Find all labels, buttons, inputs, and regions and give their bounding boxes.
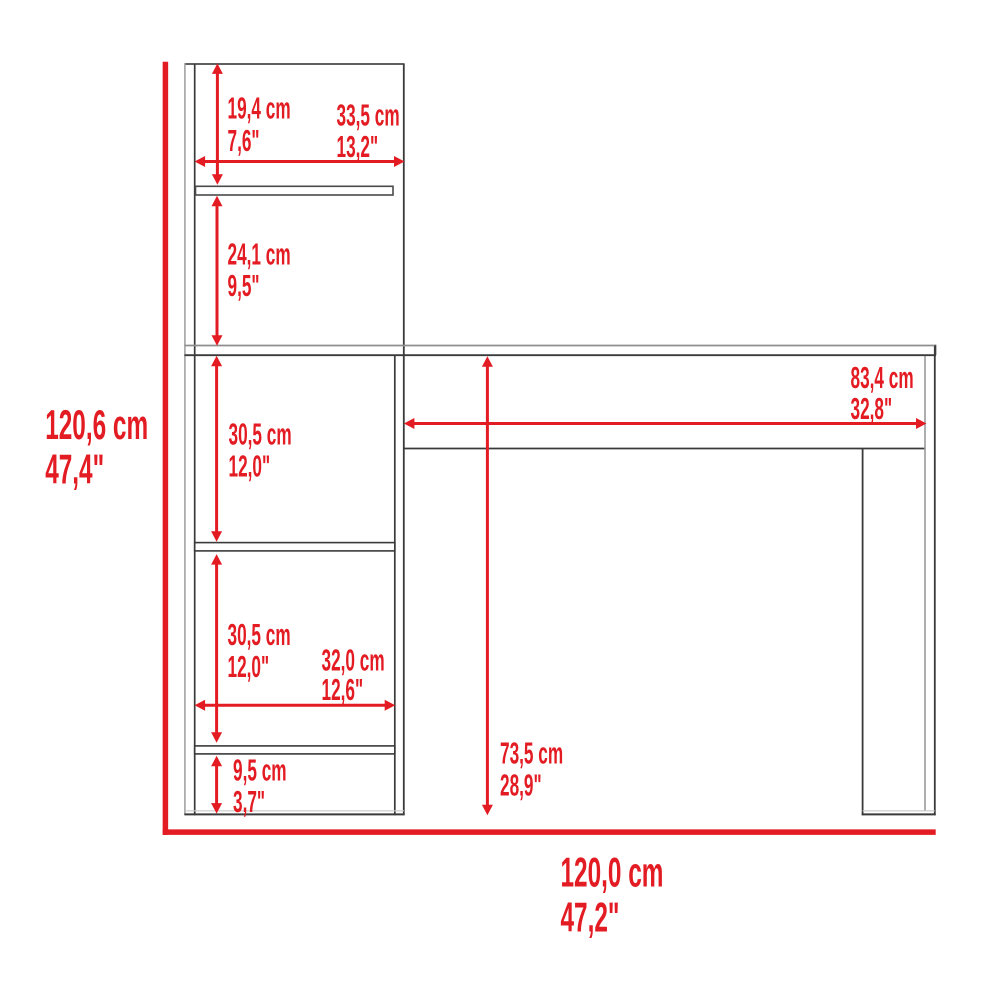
svg-text:83,4 cm: 83,4 cm: [851, 361, 914, 396]
svg-text:30,5 cm: 30,5 cm: [228, 618, 291, 653]
svg-text:9,5": 9,5": [228, 269, 260, 304]
svg-text:24,1 cm: 24,1 cm: [228, 237, 291, 272]
svg-text:12,6": 12,6": [322, 673, 364, 708]
svg-text:19,4 cm: 19,4 cm: [228, 91, 291, 126]
svg-text:47,2": 47,2": [561, 895, 620, 941]
svg-text:13,2": 13,2": [337, 130, 379, 165]
svg-text:12,0": 12,0": [229, 449, 271, 484]
svg-text:120,0 cm: 120,0 cm: [561, 850, 664, 896]
svg-text:7,6": 7,6": [228, 124, 260, 159]
svg-text:120,6 cm: 120,6 cm: [45, 402, 148, 448]
svg-text:30,5 cm: 30,5 cm: [229, 417, 292, 452]
svg-text:32,8": 32,8": [851, 392, 893, 427]
svg-text:12,0": 12,0": [228, 650, 270, 685]
svg-text:9,5 cm: 9,5 cm: [233, 753, 287, 788]
svg-text:47,4": 47,4": [45, 447, 104, 493]
svg-text:33,5 cm: 33,5 cm: [337, 98, 400, 133]
svg-text:3,7": 3,7": [233, 785, 265, 820]
svg-text:73,5 cm: 73,5 cm: [500, 736, 563, 771]
svg-text:28,9": 28,9": [500, 768, 542, 803]
